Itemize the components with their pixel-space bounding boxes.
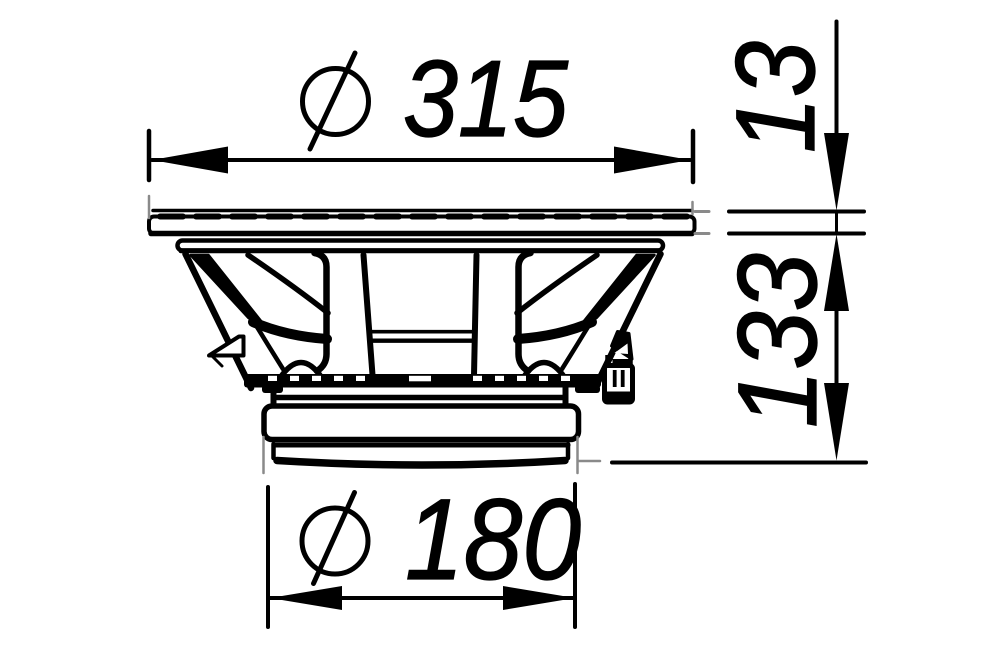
svg-text:180: 180: [405, 476, 581, 604]
svg-text:13: 13: [713, 41, 838, 153]
svg-text:315: 315: [403, 38, 568, 160]
svg-text:133: 133: [715, 253, 840, 428]
